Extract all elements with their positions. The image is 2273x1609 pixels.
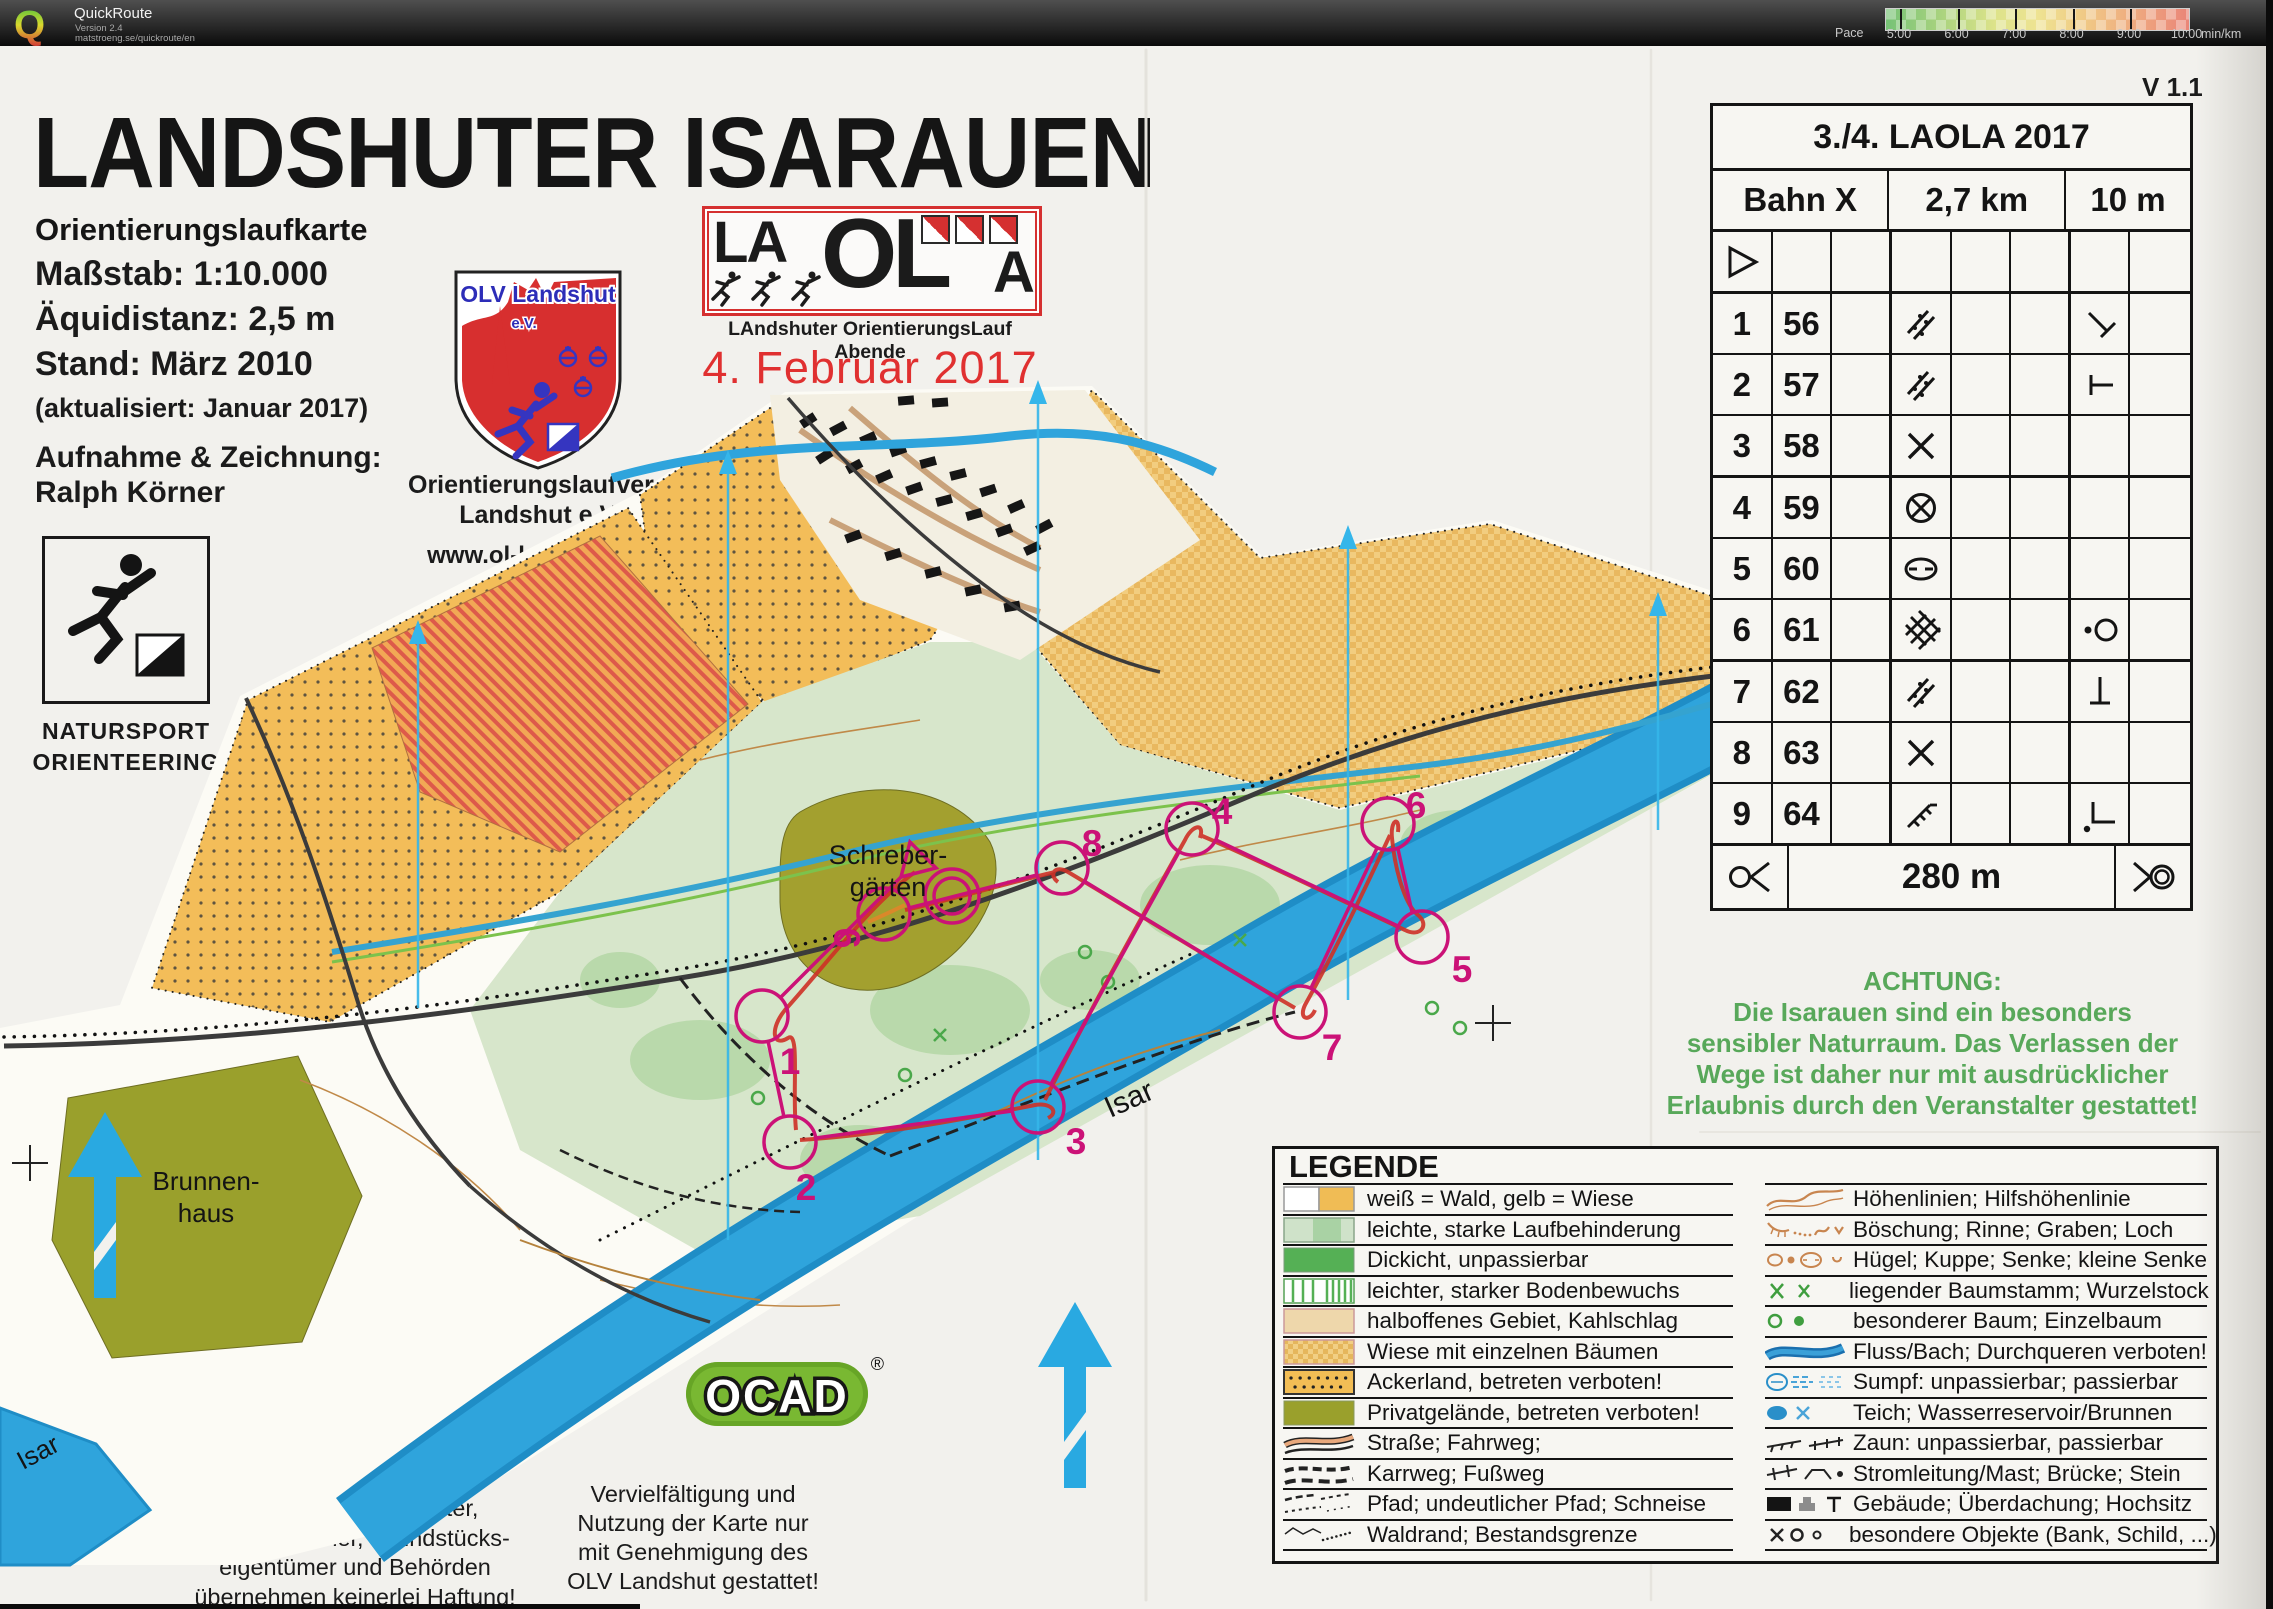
control-cell-B: 64	[1773, 784, 1833, 843]
control-cell-B: 62	[1773, 662, 1833, 721]
control-cell-D	[1892, 416, 1952, 475]
control-cell-H	[2130, 294, 2190, 353]
legend-swatch-baumstamm-icon	[1765, 1278, 1845, 1304]
control-cell-A: 8	[1713, 723, 1773, 782]
control-cell-F	[2011, 784, 2071, 843]
legend-row: Fluss/Bach; Durchqueren verboten!	[1765, 1338, 2207, 1369]
north-arrow-icon-2	[1038, 1302, 1112, 1488]
control-cell-H	[2130, 416, 2190, 475]
legend-label: Straße; Fahrweg;	[1363, 1430, 1541, 1456]
legend-swatch-stromleitung-icon	[1765, 1461, 1849, 1487]
control-cell-D	[1892, 723, 1952, 782]
control-cell-F	[2011, 539, 2071, 598]
control-cell-C	[1832, 478, 1892, 537]
control-cell-B: 60	[1773, 539, 1833, 598]
control-cell-B: 61	[1773, 600, 1833, 659]
pace-tick-label: 9:00	[2104, 27, 2154, 41]
svg-text:2: 2	[796, 1167, 817, 1208]
control-cell-H	[2130, 355, 2190, 414]
control-cell-G	[2071, 232, 2131, 291]
control-cell-D	[1892, 600, 1952, 659]
legend-swatch-objekte-icon	[1765, 1522, 1845, 1548]
control-cell-B: 63	[1773, 723, 1833, 782]
legend-row: Gebäude; Überdachung; Hochsitz	[1765, 1490, 2207, 1521]
legend-label: Zaun: unpassierbar, passierbar	[1849, 1430, 2163, 1456]
control-cell-E	[1952, 723, 2012, 782]
svg-text:6: 6	[1406, 785, 1427, 826]
control-cell-F	[2011, 662, 2071, 721]
control-cell-D	[1892, 355, 1952, 414]
control-row: 257	[1713, 355, 2190, 416]
legend-box: LEGENDE weiß = Wald, gelb = Wieseleichte…	[1272, 1146, 2219, 1564]
app-title: QuickRoute	[74, 5, 152, 22]
control-cell-B: 56	[1773, 294, 1833, 353]
scan-edge-bottom	[0, 1604, 640, 1609]
legend-label: Pfad; undeutlicher Pfad; Schneise	[1363, 1491, 1706, 1517]
control-row: 156	[1713, 294, 2190, 355]
legend-label: Böschung; Rinne; Graben; Loch	[1849, 1217, 2173, 1243]
control-cell-F	[2011, 478, 2071, 537]
legend-swatch-wiese-baeume-icon	[1283, 1339, 1363, 1365]
legend-row: Waldrand; Bestandsgrenze	[1283, 1521, 1733, 1552]
control-cell-B	[1773, 232, 1833, 291]
control-cell-D	[1892, 539, 1952, 598]
control-cell-G	[2071, 784, 2131, 843]
svg-text:e.V.: e.V.	[511, 315, 536, 332]
legend-swatch-boeschung-icon	[1765, 1217, 1849, 1243]
svg-text:haus: haus	[178, 1198, 234, 1228]
legend-swatch-waldrand-icon	[1283, 1522, 1363, 1548]
legend-row: leichter, starker Bodenbewuchs	[1283, 1277, 1733, 1308]
app-url: matstroeng.se/quickroute/en	[75, 33, 195, 44]
legend-swatch-halboffen-icon	[1283, 1308, 1363, 1334]
legend-swatch-teich-icon	[1765, 1400, 1849, 1426]
pace-tick-label: 6:00	[1932, 27, 1982, 41]
control-row	[1713, 232, 2190, 294]
legend-row: Böschung; Rinne; Graben; Loch	[1765, 1216, 2207, 1247]
legend-row: Karrweg; Fußweg	[1283, 1460, 1733, 1491]
svg-text:5: 5	[1452, 949, 1473, 990]
control-cell-F	[2011, 600, 2071, 659]
legend-column-right: Höhenlinien; HilfshöhenlinieBöschung; Ri…	[1765, 1183, 2207, 1551]
scan-edge	[2266, 0, 2273, 1609]
legend-row: Privatgelände, betreten verboten!	[1283, 1399, 1733, 1430]
legend-row: Straße; Fahrweg;	[1283, 1429, 1733, 1460]
legend-column-left: weiß = Wald, gelb = Wieseleichte, starke…	[1283, 1183, 1733, 1551]
legend-swatch-privat-icon	[1283, 1400, 1363, 1426]
scanned-map-page: 1 2 3 4 5 6 7 8 9 Schreber- gärten Brunn…	[0, 0, 2273, 1609]
finish-row: 280 m	[1713, 846, 2190, 908]
legend-row: halboffenes Gebiet, Kahlschlag	[1283, 1307, 1733, 1338]
svg-text:Q: Q	[14, 3, 45, 46]
legend-label: Ackerland, betreten verboten!	[1363, 1369, 1662, 1395]
control-cell-B: 57	[1773, 355, 1833, 414]
control-cell-A: 1	[1713, 294, 1773, 353]
legend-swatch-wald-wiese-icon	[1283, 1186, 1363, 1212]
legend-swatch-dickicht-icon	[1283, 1247, 1363, 1273]
legend-swatch-sumpf-icon	[1765, 1369, 1849, 1395]
legend-label: besonderer Baum; Einzelbaum	[1849, 1308, 2162, 1334]
control-cell-E	[1952, 416, 2012, 475]
legend-label: Privatgelände, betreten verboten!	[1363, 1400, 1700, 1426]
pace-label: Pace	[1835, 26, 1864, 40]
control-cell-E	[1952, 662, 2012, 721]
control-cell-D	[1892, 478, 1952, 537]
quickroute-titlebar: Q QuickRoute Version 2.4 matstroeng.se/q…	[0, 0, 2273, 46]
legend-row: Ackerland, betreten verboten!	[1283, 1368, 1733, 1399]
control-cell-C	[1832, 416, 1892, 475]
control-cell-A	[1713, 232, 1773, 291]
legend-label: Höhenlinien; Hilfshöhenlinie	[1849, 1186, 2131, 1212]
control-cell-A: 4	[1713, 478, 1773, 537]
control-cell-C	[1832, 784, 1892, 843]
control-cell-B: 59	[1773, 478, 1833, 537]
control-row: 459	[1713, 478, 2190, 539]
control-cell-D	[1892, 232, 1952, 291]
legend-label: halboffenes Gebiet, Kahlschlag	[1363, 1308, 1678, 1334]
legend-swatch-fluss-icon	[1765, 1339, 1849, 1365]
legend-row: Pfad; undeutlicher Pfad; Schneise	[1283, 1490, 1733, 1521]
control-cell-G	[2071, 416, 2131, 475]
control-cell-F	[2011, 232, 2071, 291]
svg-text:Schreber-: Schreber-	[829, 840, 948, 870]
control-cell-C	[1832, 232, 1892, 291]
legend-swatch-ackerland-icon	[1283, 1369, 1363, 1395]
control-cell-A: 7	[1713, 662, 1773, 721]
control-cell-C	[1832, 600, 1892, 659]
legend-swatch-strasse-icon	[1283, 1430, 1363, 1456]
legend-row: besonderer Baum; Einzelbaum	[1765, 1307, 2207, 1338]
control-table-body: 156257358459560661762863964	[1713, 232, 2190, 846]
course-header: Bahn X 2,7 km 10 m	[1713, 171, 2190, 232]
svg-text:8: 8	[1082, 823, 1103, 864]
control-cell-H	[2130, 784, 2190, 843]
control-cell-C	[1832, 539, 1892, 598]
control-cell-F	[2011, 294, 2071, 353]
control-cell-C	[1832, 662, 1892, 721]
control-cell-E	[1952, 355, 2012, 414]
quickroute-logo-icon: Q	[12, 2, 56, 46]
pace-tick-label: 5:00	[1874, 27, 1924, 41]
control-row: 964	[1713, 784, 2190, 846]
control-cell-E	[1952, 232, 2012, 291]
legend-swatch-karrweg-icon	[1283, 1461, 1363, 1487]
legend-swatch-bodenbewuchs-icon	[1283, 1278, 1363, 1304]
control-cell-A: 5	[1713, 539, 1773, 598]
control-cell-C	[1832, 723, 1892, 782]
control-cell-H	[2130, 723, 2190, 782]
legend-swatch-hoehenlinien-icon	[1765, 1186, 1849, 1212]
pace-unit: min/km	[2201, 27, 2241, 41]
legend-label: Karrweg; Fußweg	[1363, 1461, 1545, 1487]
pace-tick-label: 8:00	[2047, 27, 2097, 41]
legend-label: Stromleitung/Mast; Brücke; Stein	[1849, 1461, 2181, 1487]
control-cell-A: 9	[1713, 784, 1773, 843]
legend-label: leichter, starker Bodenbewuchs	[1363, 1278, 1680, 1304]
finish-icon	[2114, 846, 2190, 908]
svg-text:Brunnen-: Brunnen-	[153, 1166, 260, 1196]
legend-label: Hügel; Kuppe; Senke; kleine Senke	[1849, 1247, 2207, 1273]
legend-row: besondere Objekte (Bank, Schild, ...)	[1765, 1521, 2207, 1552]
control-cell-E	[1952, 600, 2012, 659]
control-description-table: 3./4. LAOLA 2017 Bahn X 2,7 km 10 m 1562…	[1710, 103, 2193, 911]
legend-swatch-zaun-icon	[1765, 1430, 1849, 1456]
legend-swatch-gebaeude-icon	[1765, 1491, 1849, 1517]
legend-row: liegender Baumstamm; Wurzelstock	[1765, 1277, 2207, 1308]
control-cell-G	[2071, 723, 2131, 782]
legend-swatch-pfad-icon	[1283, 1491, 1363, 1517]
control-cell-E	[1952, 539, 2012, 598]
control-row: 560	[1713, 539, 2190, 600]
control-cell-H	[2130, 600, 2190, 659]
legend-row: Höhenlinien; Hilfshöhenlinie	[1765, 1183, 2207, 1216]
control-cell-C	[1832, 355, 1892, 414]
control-row: 863	[1713, 723, 2190, 784]
control-cell-B: 58	[1773, 416, 1833, 475]
svg-text:9: 9	[827, 928, 868, 949]
control-cell-E	[1952, 784, 2012, 843]
legend-row: leichte, starke Laufbehinderung	[1283, 1216, 1733, 1247]
control-row: 358	[1713, 416, 2190, 478]
legend-row: Teich; Wasserreservoir/Brunnen	[1765, 1399, 2207, 1430]
control-cell-A: 2	[1713, 355, 1773, 414]
control-cell-H	[2130, 662, 2190, 721]
control-cell-F	[2011, 723, 2071, 782]
control-cell-H	[2130, 539, 2190, 598]
control-row: 762	[1713, 662, 2190, 723]
legend-row: Stromleitung/Mast; Brücke; Stein	[1765, 1460, 2207, 1491]
control-cell-E	[1952, 294, 2012, 353]
course-length: 2,7 km	[1889, 171, 2065, 229]
legend-label: besondere Objekte (Bank, Schild, ...)	[1845, 1522, 2217, 1548]
legend-label: Wiese mit einzelnen Bäumen	[1363, 1339, 1658, 1365]
pace-tick-label: 7:00	[1989, 27, 2039, 41]
legend-title: LEGENDE	[1289, 1149, 1439, 1185]
legend-label: Sumpf: unpassierbar; passierbar	[1849, 1369, 2178, 1395]
control-cell-D	[1892, 784, 1952, 843]
finish-distance: 280 m	[1789, 846, 2114, 908]
legend-label: leichte, starke Laufbehinderung	[1363, 1217, 1681, 1243]
course-name: Bahn X	[1713, 171, 1889, 229]
control-cell-A: 6	[1713, 600, 1773, 659]
control-cell-G	[2071, 539, 2131, 598]
legend-row: weiß = Wald, gelb = Wiese	[1283, 1183, 1733, 1216]
course-title: 3./4. LAOLA 2017	[1713, 106, 2190, 171]
svg-text:7: 7	[1322, 1027, 1343, 1068]
control-row: 661	[1713, 600, 2190, 662]
svg-text:3: 3	[1066, 1121, 1087, 1162]
legend-row: Hügel; Kuppe; Senke; kleine Senke	[1765, 1246, 2207, 1277]
legend-row: Sumpf: unpassierbar; passierbar	[1765, 1368, 2207, 1399]
legend-row: Dickicht, unpassierbar	[1283, 1246, 1733, 1277]
control-cell-G	[2071, 355, 2131, 414]
control-cell-F	[2011, 355, 2071, 414]
olv-crest: OLV Landshut e.V.	[448, 266, 628, 476]
control-cell-A: 3	[1713, 416, 1773, 475]
legend-label: Waldrand; Bestandsgrenze	[1363, 1522, 1638, 1548]
control-cell-G	[2071, 478, 2131, 537]
control-cell-D	[1892, 294, 1952, 353]
legend-label: Fluss/Bach; Durchqueren verboten!	[1849, 1339, 2207, 1365]
control-cell-C	[1832, 294, 1892, 353]
control-cell-E	[1952, 478, 2012, 537]
legend-row: Wiese mit einzelnen Bäumen	[1283, 1338, 1733, 1369]
legend-row: Zaun: unpassierbar, passierbar	[1765, 1429, 2207, 1460]
legend-label: liegender Baumstamm; Wurzelstock	[1845, 1278, 2209, 1304]
legend-swatch-laufbehinderung-icon	[1283, 1217, 1363, 1243]
legend-swatch-huegel-icon	[1765, 1247, 1849, 1273]
control-cell-F	[2011, 416, 2071, 475]
control-cell-H	[2130, 478, 2190, 537]
taped-route-icon	[1713, 846, 1789, 908]
pace-scale: Pace 5:006:007:008:009:0010:00 min/km	[1835, 1, 2267, 45]
svg-text:1: 1	[780, 1041, 801, 1082]
course-climb: 10 m	[2066, 171, 2190, 229]
control-cell-G	[2071, 600, 2131, 659]
legend-label: Dickicht, unpassierbar	[1363, 1247, 1588, 1273]
control-cell-D	[1892, 662, 1952, 721]
control-cell-H	[2130, 232, 2190, 291]
legend-label: Gebäude; Überdachung; Hochsitz	[1849, 1491, 2192, 1517]
legend-swatch-baum-icon	[1765, 1308, 1849, 1334]
legend-label: Teich; Wasserreservoir/Brunnen	[1849, 1400, 2172, 1426]
svg-text:4: 4	[1212, 791, 1233, 832]
svg-text:OLV Landshut: OLV Landshut	[460, 281, 616, 307]
svg-text:gärten: gärten	[850, 872, 927, 902]
control-cell-G	[2071, 294, 2131, 353]
legend-label: weiß = Wald, gelb = Wiese	[1363, 1186, 1634, 1212]
control-cell-G	[2071, 662, 2131, 721]
